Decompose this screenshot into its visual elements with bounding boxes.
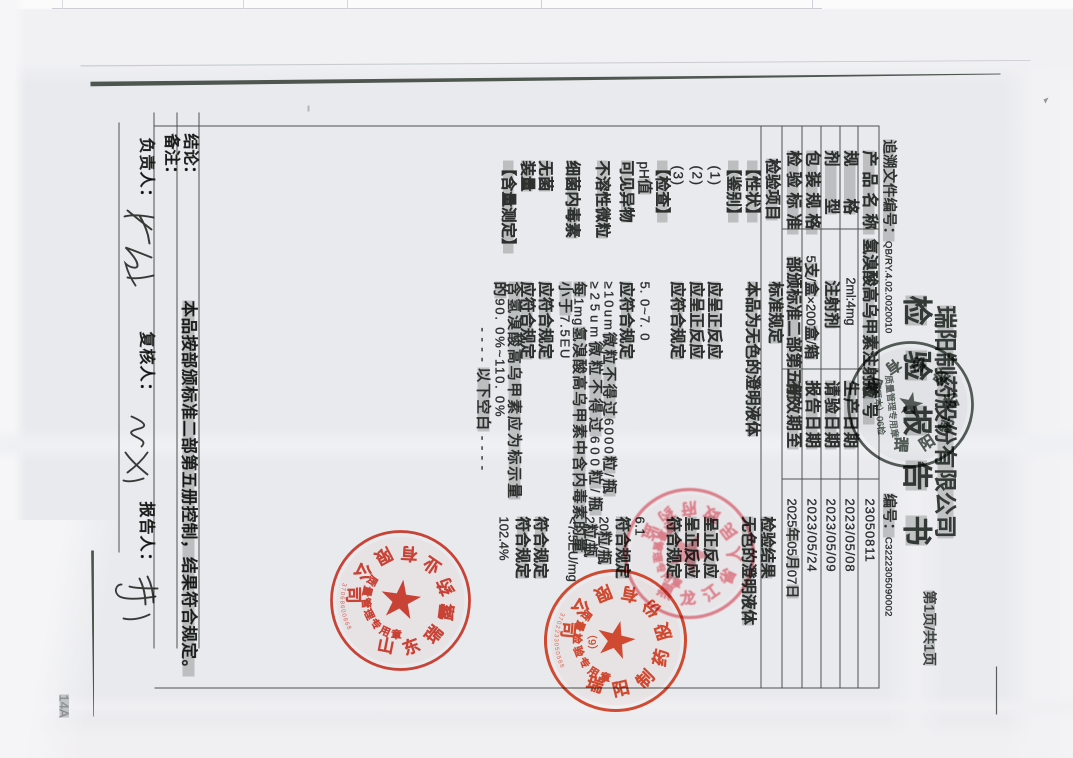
svg-text:（9）: （9） (584, 628, 598, 656)
